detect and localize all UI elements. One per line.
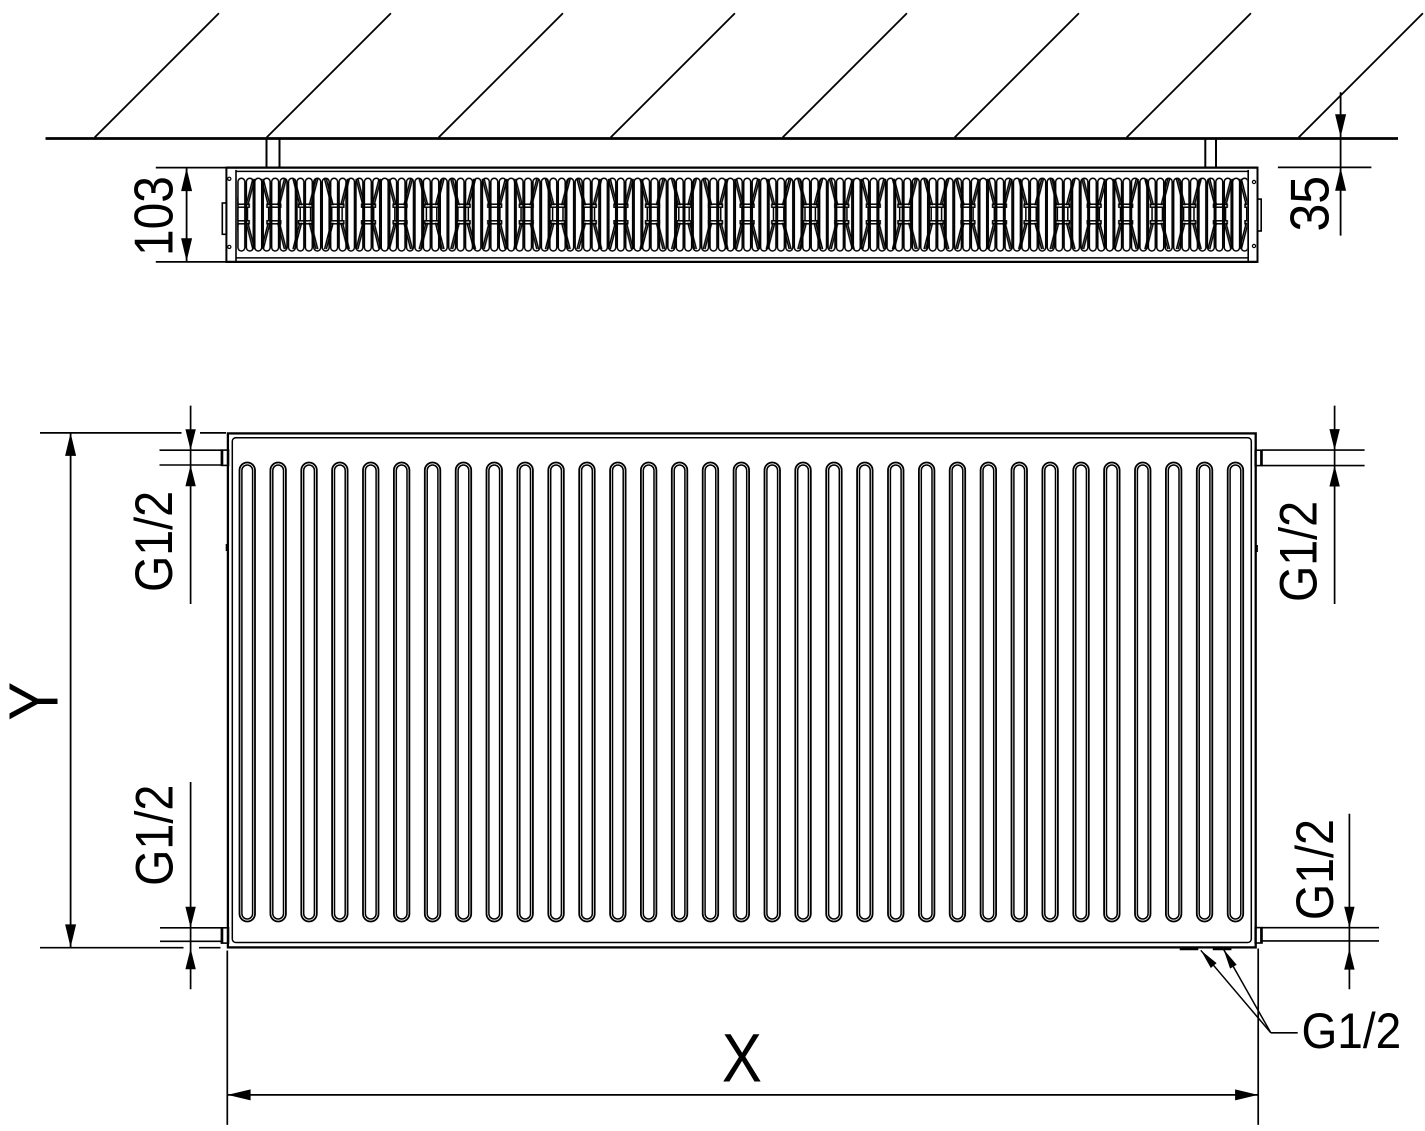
svg-text:X: X	[722, 1019, 762, 1097]
svg-text:G1/2: G1/2	[1302, 1004, 1402, 1059]
svg-text:G1/2: G1/2	[1269, 501, 1328, 602]
svg-text:Y: Y	[0, 682, 73, 721]
svg-text:103: 103	[122, 176, 184, 256]
svg-text:35: 35	[1279, 176, 1341, 232]
svg-text:G1/2: G1/2	[125, 785, 184, 886]
svg-text:G1/2: G1/2	[1285, 819, 1344, 920]
svg-text:G1/2: G1/2	[124, 491, 183, 592]
